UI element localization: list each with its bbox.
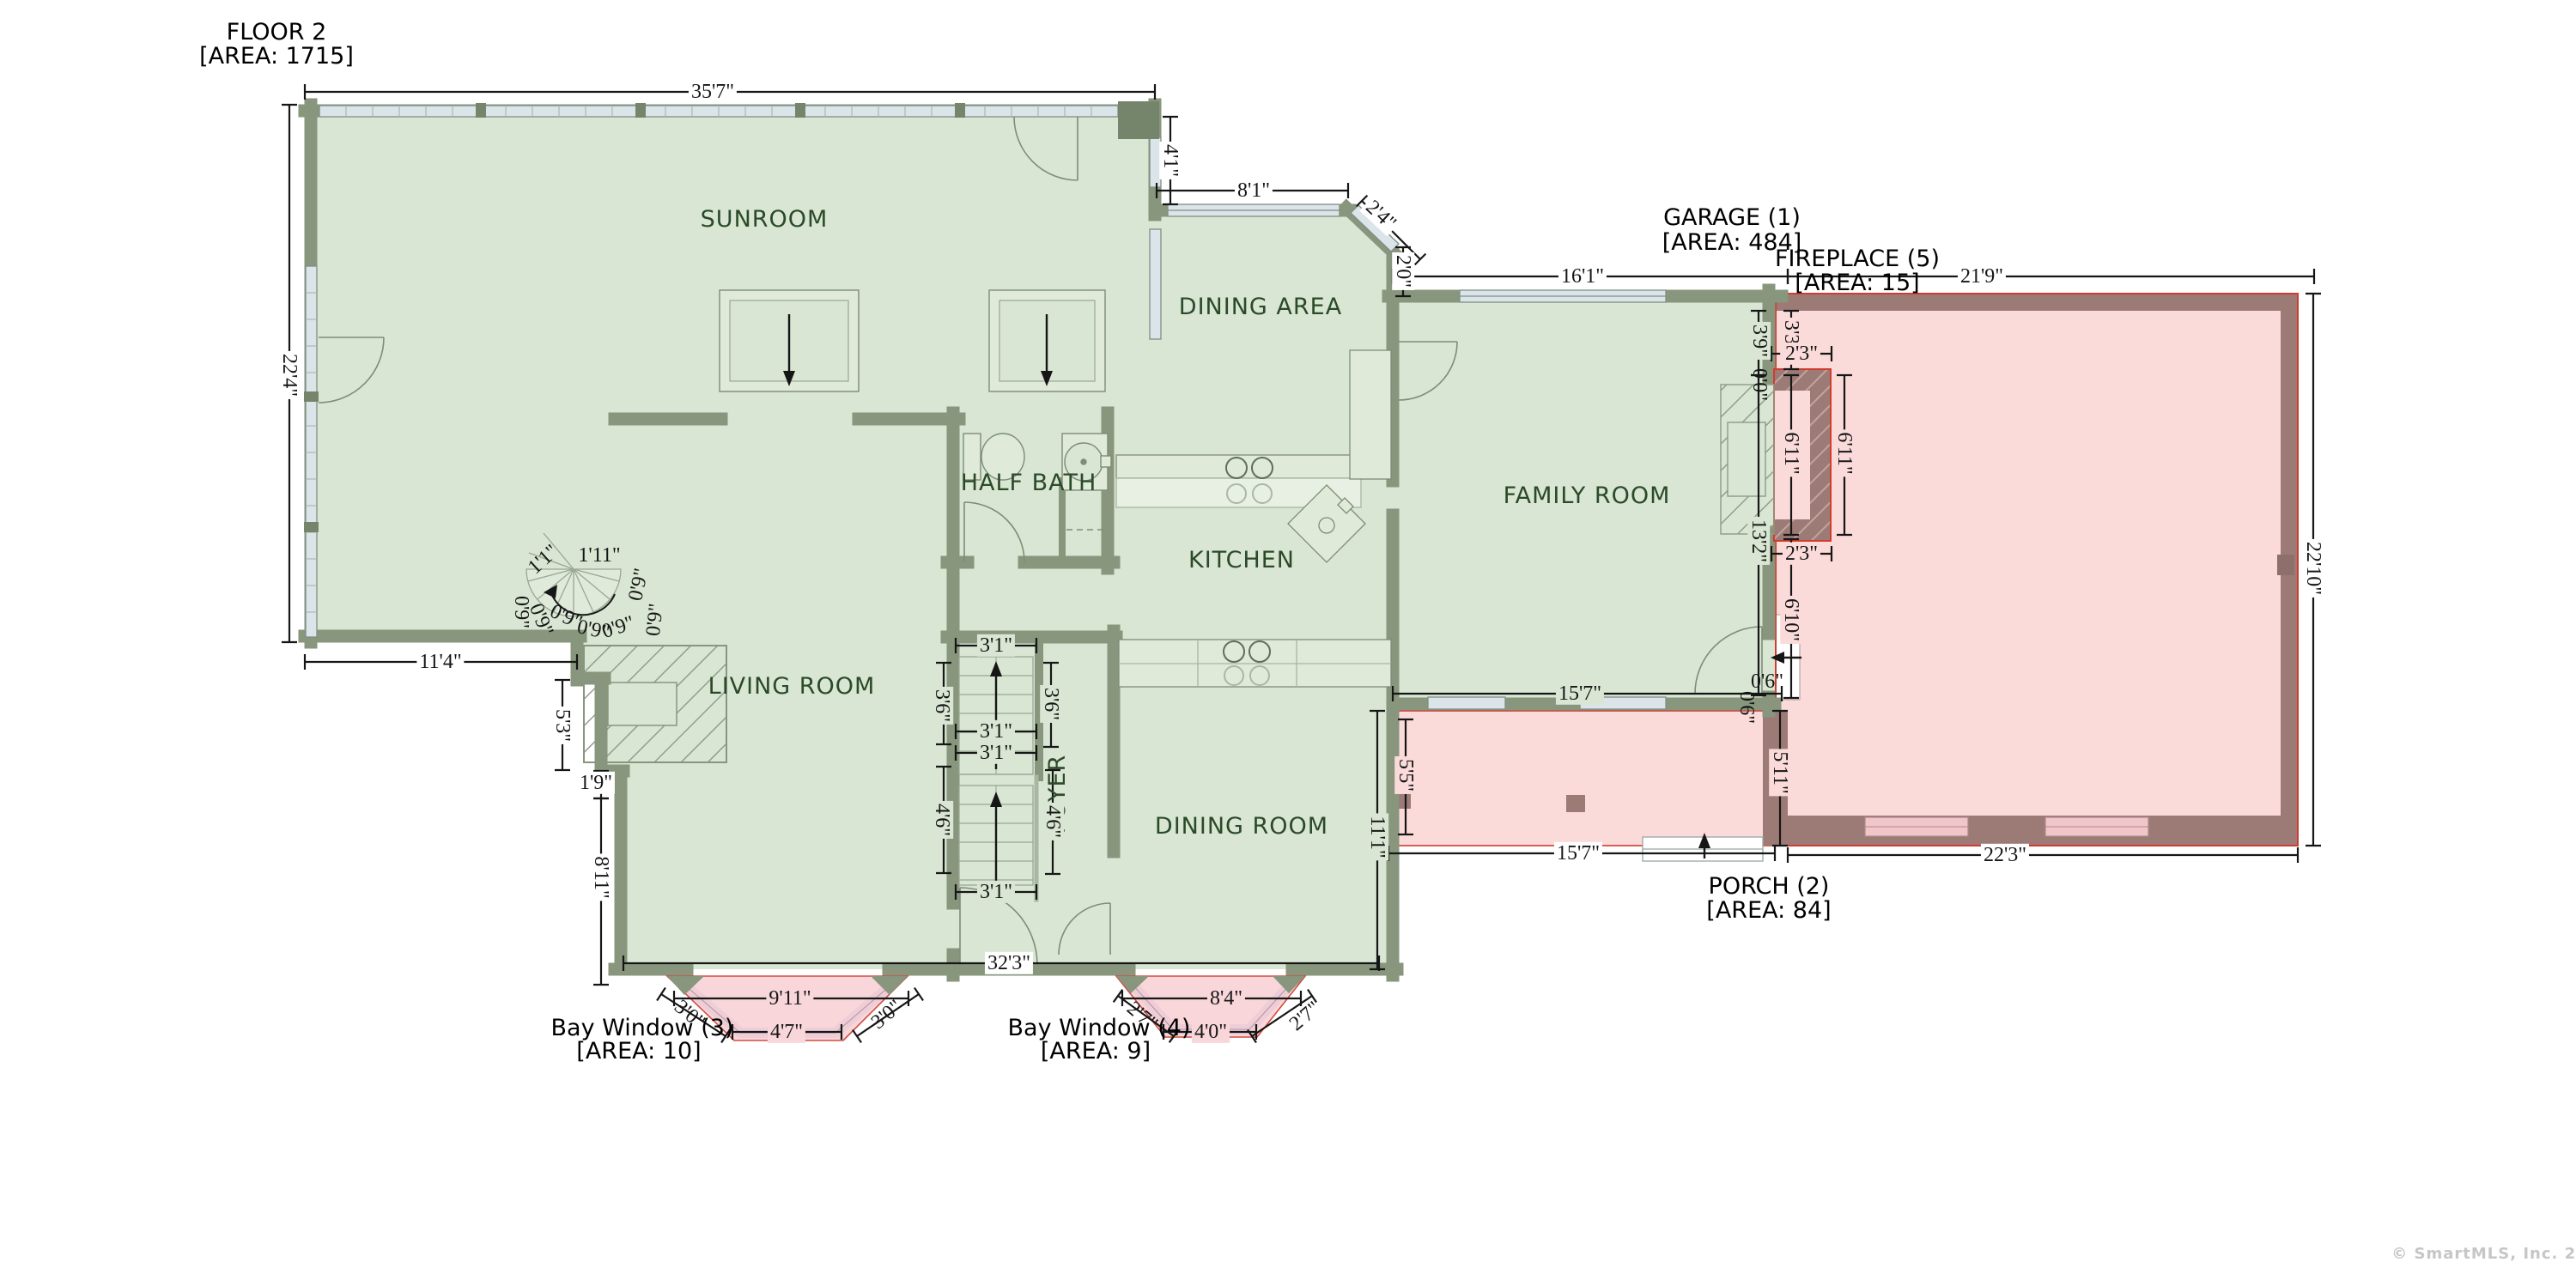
label-titles-fireplace-l1: FIREPLACE (5) [1775,246,1940,272]
label-dims-d0_0: 0'0" [1748,368,1771,401]
label-rooms-living_room: LIVING ROOM [708,674,876,700]
fireplace [1721,369,1831,541]
floor-plan-canvas: FLOOR 2[AREA: 1715]GARAGE (1)[AREA: 484]… [0,0,2576,1268]
label-dims-d3_6: 3'6" [931,687,953,725]
label-dims-d8_11: 8'11" [590,853,612,901]
label-dims-d4_6: 4'6" [1042,803,1064,840]
family-bottom-window [1428,697,1505,709]
label-dims-d9_11: 9'11" [766,987,813,1010]
garage-area [1776,294,2298,846]
label-dims-d6_11: 6'11" [1833,429,1856,476]
label-dims-d11_4: 11'4" [416,651,464,673]
label-dims-d5_11: 5'11" [1769,749,1791,796]
label-rooms-half_bath: HALF BATH [961,470,1097,496]
hearth-inner [1728,422,1765,496]
label-rooms-dining_room: DINING ROOM [1155,814,1328,840]
porch-post [1566,795,1585,812]
label-rooms-sunroom: SUNROOM [701,207,829,233]
label-dims-d3_1: 3'1" [977,720,1015,743]
label-titles-porch-l1: PORCH (2) [1709,874,1830,900]
label-dims-d2_3: 2'3" [1783,343,1820,365]
label-dims-d32_3: 32'3" [985,952,1033,974]
label-dims-d5_3: 5'3" [551,707,574,744]
label-dims-d15_7: 15'7" [1554,842,1602,865]
label-dims-d35_7: 35'7" [689,81,737,103]
label-meta-watermark: © SmartMLS, Inc. 2025 [2391,1246,2576,1263]
label-titles-bay4-l2: [AREA: 9] [1041,1039,1151,1065]
label-dims-d22_4: 22'4" [278,351,301,399]
porch-area [1397,711,1788,861]
label-titles-floor-l1: FLOOR 2 [227,20,327,46]
label-dims-d2_0: 2'0" [1392,252,1414,290]
sunroom-door-unit [720,290,859,391]
label-dims-d5_5: 5'5" [1394,756,1417,794]
label-dims-d22_10: 22'10" [2302,539,2324,598]
label-dims-d3_9: 3'9" [1748,322,1771,360]
garage-vent [2277,555,2294,575]
label-dims-d4_7: 4'7" [768,1021,805,1043]
label-dims-d1_11: 1'11" [578,544,620,567]
label-dims-d6_10: 6'10" [1780,596,1802,644]
floor-plan-graphic [0,0,2576,1268]
label-dims-d0_6: 0'6" [1751,670,1783,693]
sunroom-left-windows [306,266,317,637]
label-dims-d0_6: 0'6" [1735,691,1758,724]
label-dims-d3_1: 3'1" [977,634,1015,657]
label-titles-floor-l2: [AREA: 1715] [199,44,354,70]
label-dims-d16_1: 16'1" [1558,265,1607,288]
label-dims-d3_1: 3'1" [977,881,1015,903]
sunroom-door-unit [989,290,1105,391]
label-titles-fireplace-l2: [AREA: 15] [1795,270,1919,296]
label-dims-d13_2: 13'2" [1747,517,1770,565]
label-dims-d4_0: 4'0" [1192,1021,1230,1043]
label-dims-d15_7: 15'7" [1556,683,1604,705]
label-rooms-family_room: FAMILY ROOM [1504,483,1671,509]
label-titles-garage-l1: GARAGE (1) [1663,205,1801,231]
window [1150,229,1161,339]
label-dims-d4_1: 4'1" [1159,142,1182,179]
label-dims-d1_9: 1'9" [577,772,615,794]
label-rooms-dining_area: DINING AREA [1179,294,1342,320]
label-dims-d8_4: 8'4" [1207,987,1245,1010]
label-dims-d3_1: 3'1" [977,742,1015,764]
label-dims-d21_9: 21'9" [1958,265,2006,288]
chimney-inner [608,683,677,725]
label-dims-d22_3: 22'3" [1981,844,2029,866]
label-titles-porch-l2: [AREA: 84] [1706,898,1831,924]
label-dims-d6_11: 6'11" [1780,429,1802,476]
label-dims-d11_1: 11'1" [1366,813,1388,860]
label-dims-d4_6: 4'6" [931,801,953,839]
label-dims-d3_6: 3'6" [1040,685,1062,723]
label-titles-bay3-l2: [AREA: 10] [576,1039,701,1065]
label-rooms-kitchen: KITCHEN [1188,548,1295,573]
label-dims-d2_3: 2'3" [1783,543,1820,565]
label-dims-d0_9: 0'9" [642,603,668,638]
faucet [1101,456,1111,467]
label-dims-d8_1: 8'1" [1235,179,1273,202]
garage-wall-bottom [1776,816,2298,846]
